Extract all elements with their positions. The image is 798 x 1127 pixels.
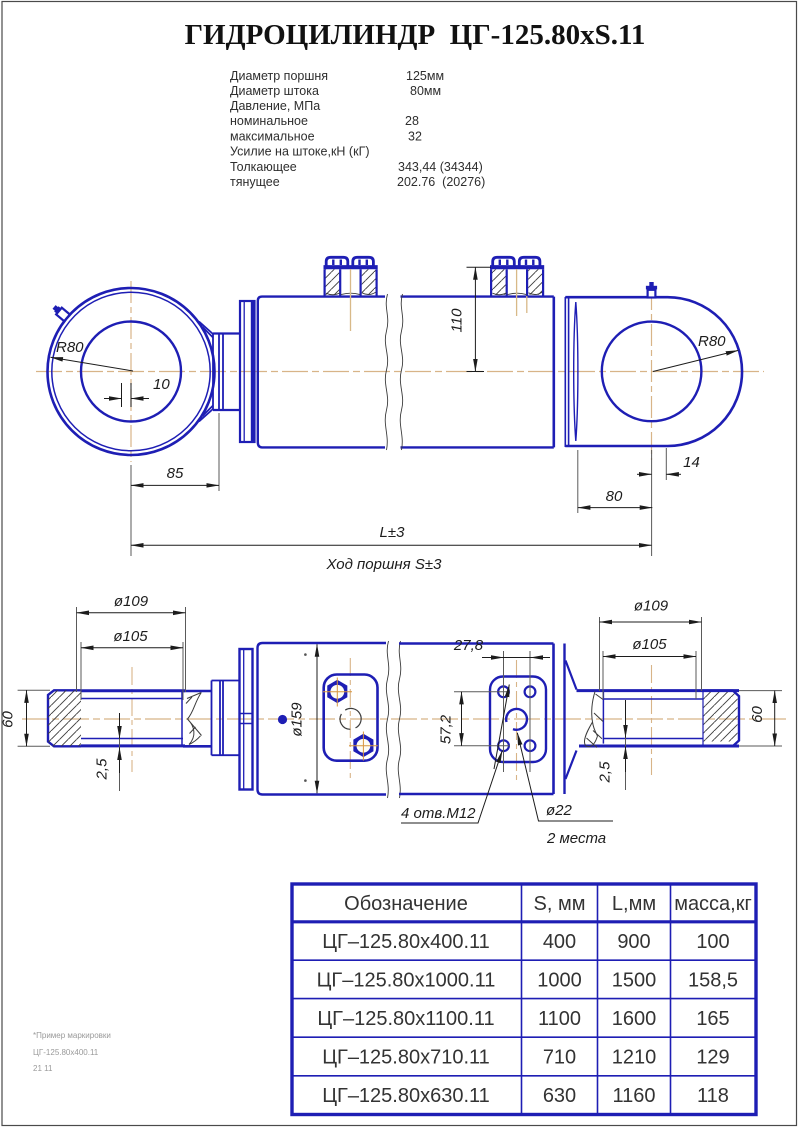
svg-text:Ход поршня S±3: Ход поршня S±3 [326,556,443,573]
svg-text:4 отв.М12: 4 отв.М12 [401,805,476,822]
svg-text:1100: 1100 [538,1008,581,1030]
svg-text:максимальное: максимальное [230,130,315,144]
svg-text:ø22: ø22 [546,802,573,819]
svg-text:158,5: 158,5 [688,970,738,992]
svg-text:2,5: 2,5 [94,758,111,781]
svg-text:ø159: ø159 [289,702,306,737]
svg-text:номинальное: номинальное [230,114,308,128]
svg-text:28: 28 [405,114,419,128]
svg-text:масса,кг: масса,кг [674,893,752,915]
svg-text:ЦГ–125.80х710.11: ЦГ–125.80х710.11 [322,1047,490,1069]
svg-text:343,44 (34344): 343,44 (34344) [398,160,483,174]
svg-text:32: 32 [408,130,422,144]
svg-text:ЦГ–125.80х1100.11: ЦГ–125.80х1100.11 [317,1008,494,1030]
svg-text:L±3: L±3 [380,524,406,541]
svg-text:Диаметр штока: Диаметр штока [230,84,319,98]
svg-text:тянущее: тянущее [230,175,280,189]
svg-text:R80: R80 [698,333,726,350]
svg-text:14: 14 [683,454,700,471]
svg-text:118: 118 [697,1085,729,1107]
svg-text:1160: 1160 [612,1085,655,1107]
svg-text:165: 165 [696,1008,729,1030]
svg-text:Толкающее: Толкающее [230,160,297,174]
svg-text:ЦГ–125.80х630.11: ЦГ–125.80х630.11 [322,1085,490,1107]
svg-text:21 11: 21 11 [33,1064,53,1073]
svg-text:Обозначение: Обозначение [344,893,468,915]
svg-text:27,8: 27,8 [453,637,484,654]
svg-text:Диаметр поршня: Диаметр поршня [230,69,328,83]
svg-text:630: 630 [543,1085,576,1107]
svg-text:900: 900 [617,931,650,953]
svg-text:ø105: ø105 [632,636,667,653]
svg-text:Усилие на штоке,кН (кГ): Усилие на штоке,кН (кГ) [230,145,370,159]
svg-text:R80: R80 [56,339,84,356]
svg-text:400: 400 [543,931,576,953]
svg-text:80мм: 80мм [410,84,441,98]
svg-text:57,2: 57,2 [438,714,455,744]
svg-text:1000: 1000 [537,970,582,992]
svg-text:710: 710 [543,1047,576,1069]
svg-text:80: 80 [606,488,623,505]
svg-text:ЦГ–125.80х400.11: ЦГ–125.80х400.11 [322,931,490,953]
svg-text:ЦГ–125.80х1000.11: ЦГ–125.80х1000.11 [317,970,496,992]
svg-text:202.76 (20276): 202.76 (20276) [397,175,485,189]
svg-text:S, мм: S, мм [534,893,586,915]
svg-text:125мм: 125мм [406,69,444,83]
svg-text:ГИДРОЦИЛИНДР ЦГ-125.80хS.11: ГИДРОЦИЛИНДР ЦГ-125.80хS.11 [185,19,646,51]
svg-text:ø109: ø109 [634,598,669,615]
svg-text:10: 10 [153,376,170,393]
svg-text:2,5: 2,5 [597,761,614,784]
svg-text:ø105: ø105 [113,628,148,645]
svg-text:129: 129 [696,1047,729,1069]
svg-text:85: 85 [167,465,184,482]
svg-text:60: 60 [0,711,17,728]
svg-text:ЦГ-125.80х400.11: ЦГ-125.80х400.11 [33,1048,99,1057]
svg-text:1500: 1500 [612,970,657,992]
svg-text:1210: 1210 [612,1047,657,1069]
svg-text:*Пример маркировки: *Пример маркировки [33,1031,111,1040]
svg-text:L,мм: L,мм [612,893,656,915]
svg-text:100: 100 [696,931,729,953]
svg-text:1600: 1600 [612,1008,657,1030]
svg-text:60: 60 [749,706,766,723]
svg-text:2 места: 2 места [546,830,606,847]
svg-text:110: 110 [449,308,466,333]
svg-text:ø109: ø109 [114,593,149,610]
svg-text:Давление, МПа: Давление, МПа [230,99,320,113]
